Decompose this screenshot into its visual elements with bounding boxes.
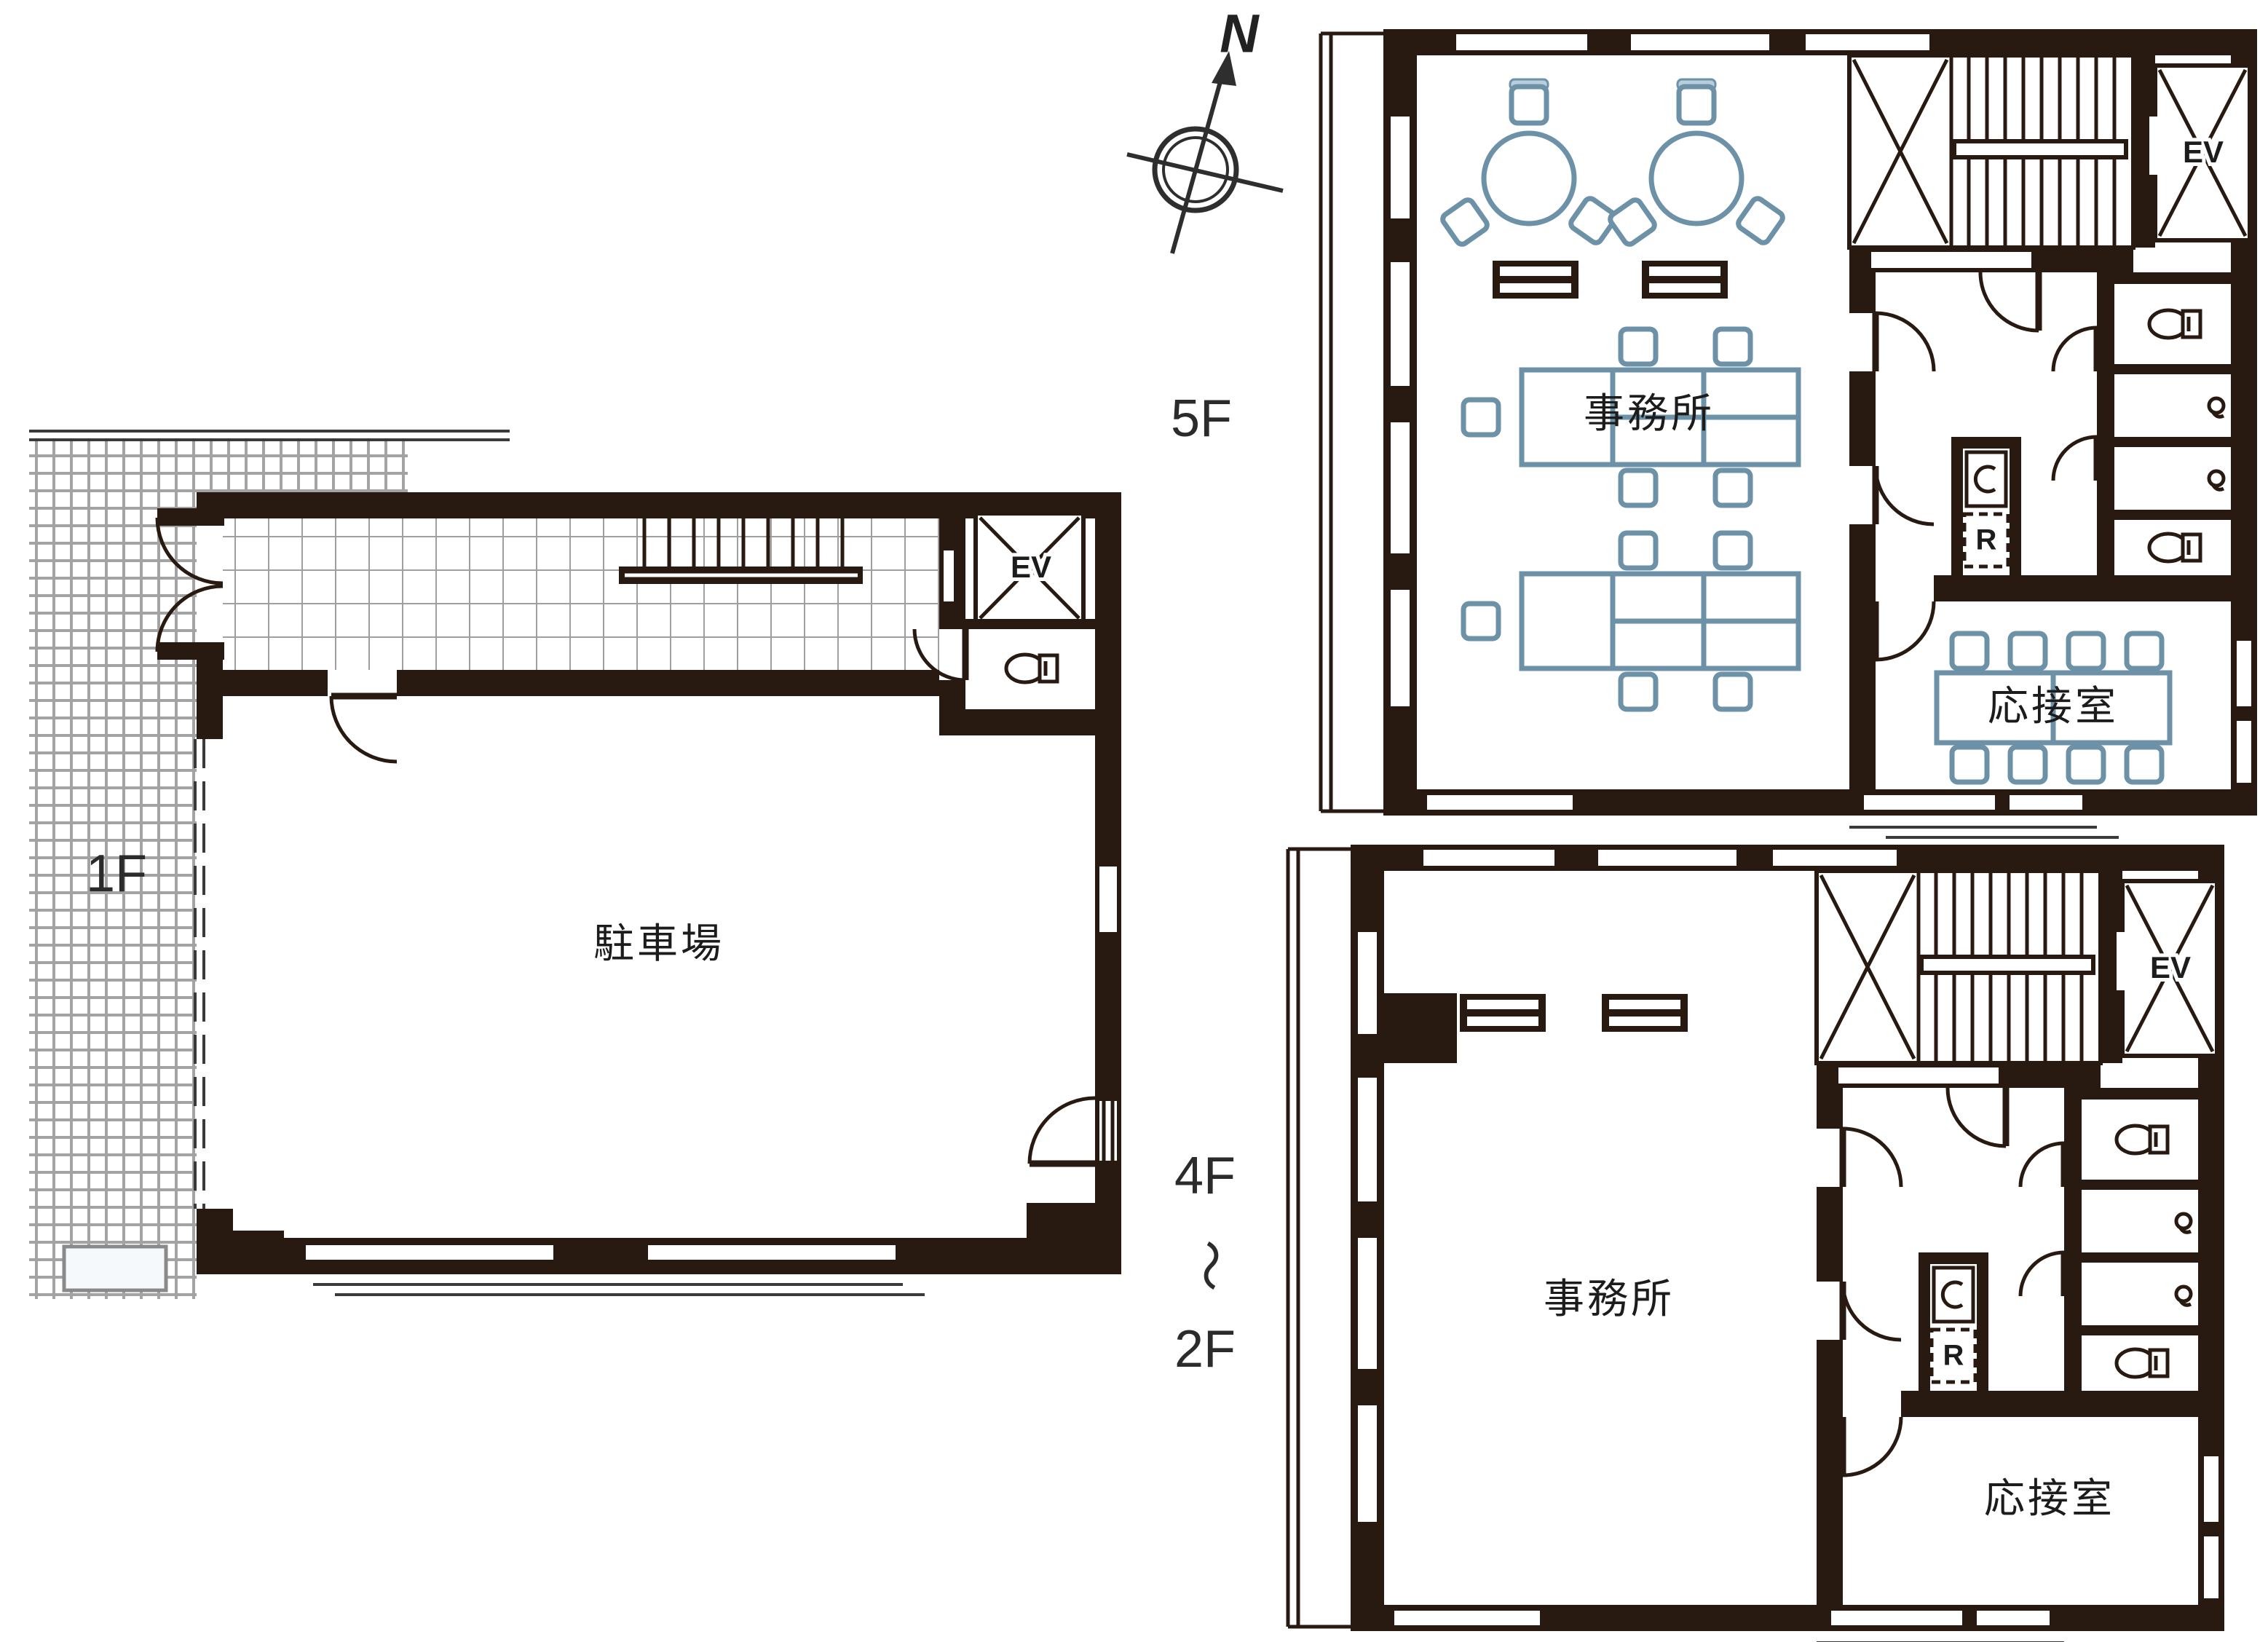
floorplan-drawing: EV [0, 0, 2268, 1642]
label-2f: 2F [1174, 1320, 1236, 1378]
compass: N [1127, 4, 1283, 253]
office-room-label-5f: 事務所 [1584, 390, 1715, 436]
parking-room-label: 駐車場 [593, 920, 724, 966]
label-4f: 4F [1174, 1147, 1236, 1205]
column [1384, 993, 1457, 1063]
reception-room-label-2-4f: 応接室 [1984, 1475, 2115, 1521]
label-tilde: ～ [1180, 1239, 1238, 1292]
elevator-label-1f: EV [1011, 550, 1051, 584]
compass-north-label: N [1220, 4, 1260, 64]
reception-room-label-5f: 応接室 [1988, 683, 2119, 729]
floor-2-4f-label: 4F ～ 2F [1174, 1147, 1238, 1378]
floor-5f-label: 5F [1171, 390, 1232, 448]
planter [64, 1247, 166, 1290]
entrance-hall [223, 518, 939, 670]
floor-plan-2-4f: 事務所 応接室 [1288, 845, 2224, 1642]
floor-plan-5f: 事務所 応接室 [1321, 29, 2257, 837]
floorplan-page: EV [0, 0, 2268, 1642]
office-room-label-2-4f: 事務所 [1544, 1276, 1675, 1322]
elevator-block-1f: EV [914, 513, 1095, 735]
floor-1f-label: 1F [86, 845, 147, 903]
floor-plan-1f: 1F [29, 431, 1121, 1299]
